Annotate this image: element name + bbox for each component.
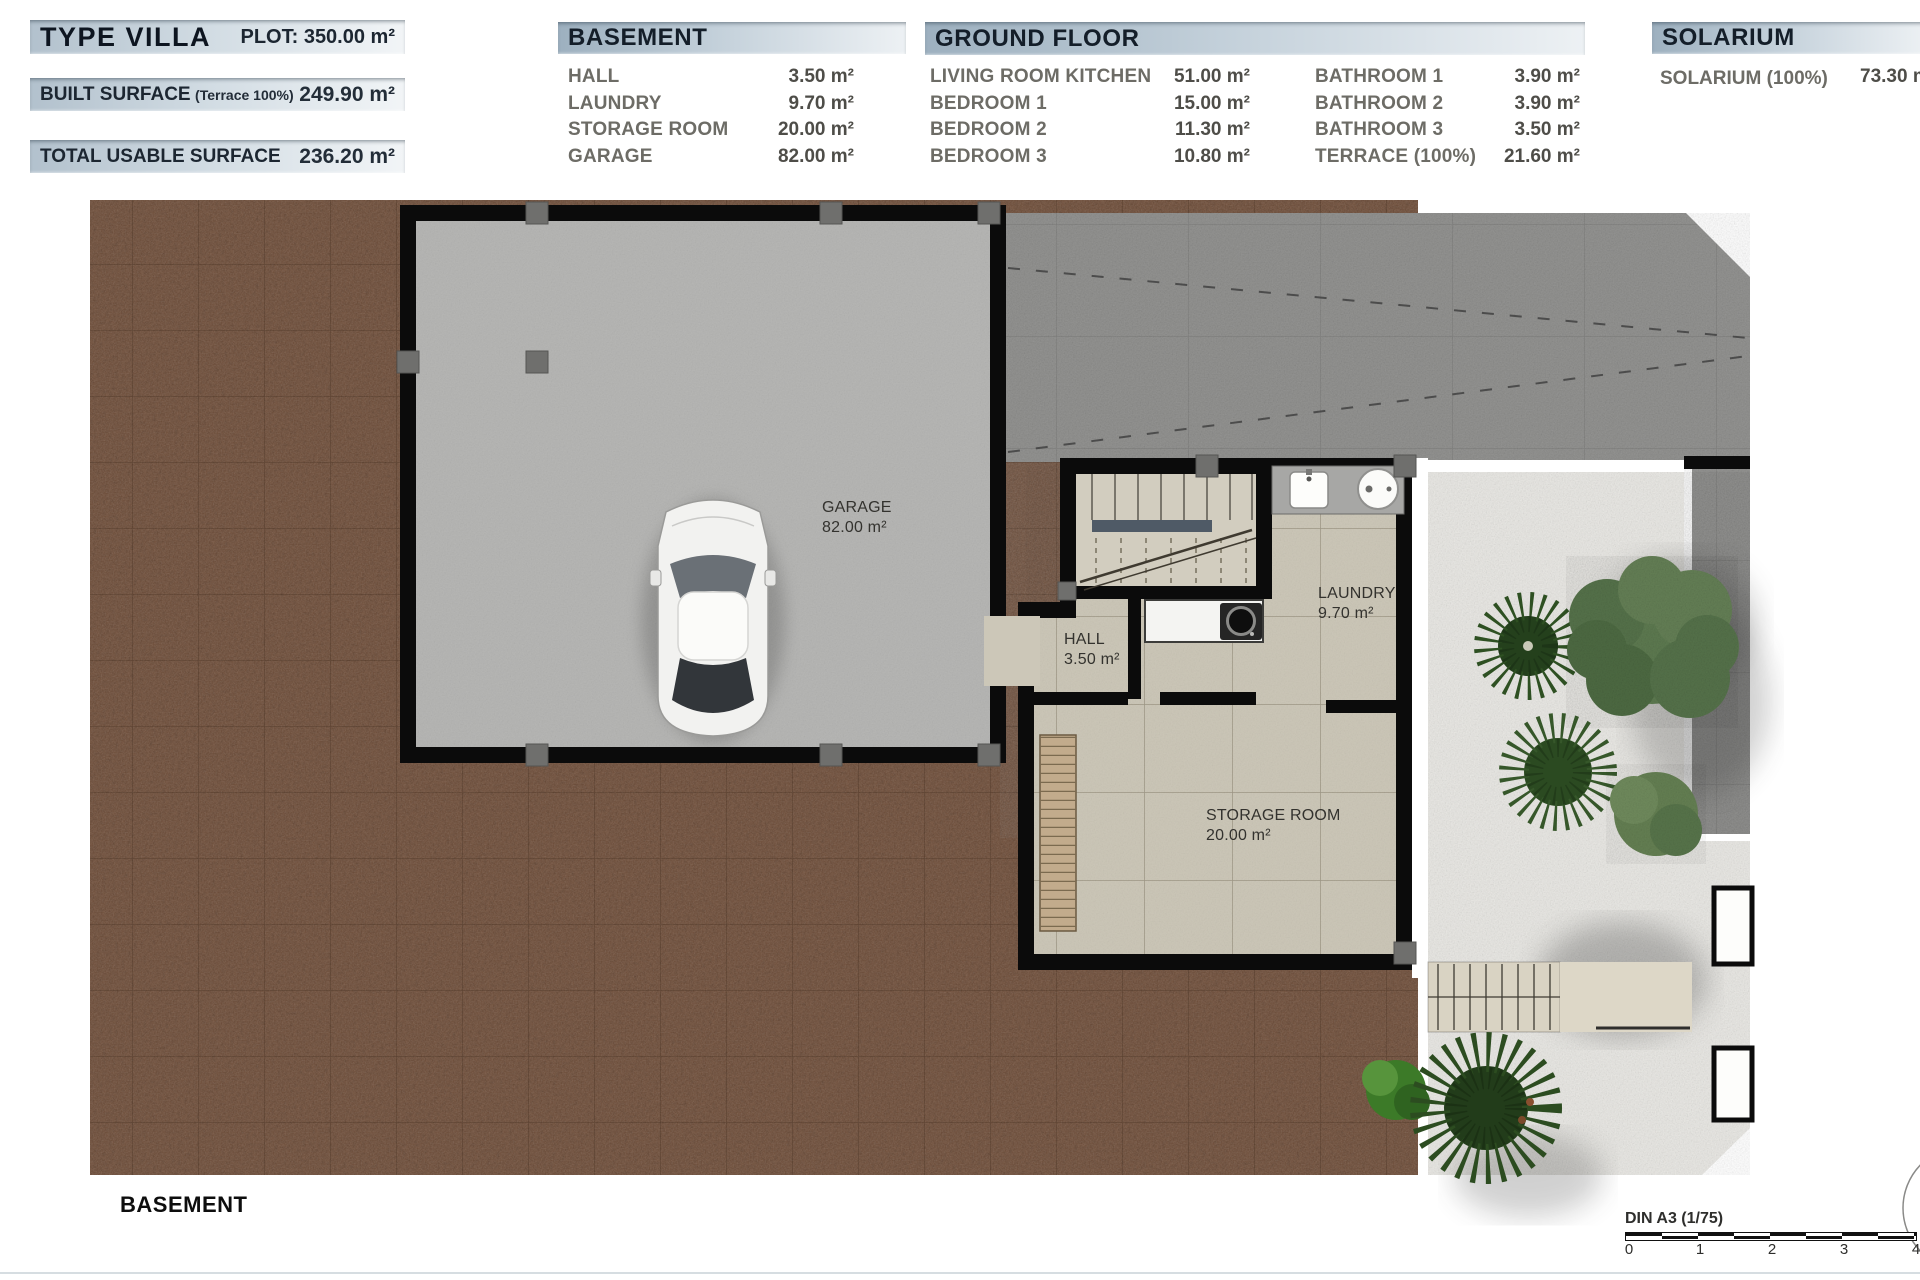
basement-table: HALL 3.50 m² LAUNDRY 9.70 m² STORAGE ROO… — [568, 64, 854, 170]
ground-floor-table-header: GROUND FLOOR — [925, 22, 1585, 55]
built-surface-bar: BUILT SURFACE (Terrace 100%) 249.90 m² — [30, 78, 405, 111]
room-name: HALL — [1064, 630, 1120, 650]
usable-surface-label: TOTAL USABLE SURFACE — [40, 146, 281, 168]
planter-box-2 — [1714, 1048, 1752, 1120]
room-name: STORAGE ROOM — [1206, 806, 1341, 826]
table-row: LAUNDRY 9.70 m² — [568, 91, 854, 118]
floor-plan-page: TYPE VILLA PLOT: 350.00 m² BUILT SURFACE… — [0, 0, 1920, 1280]
row-label: BATHROOM 3 — [1315, 119, 1443, 141]
row-value: 9.70 m² — [789, 93, 854, 115]
scale-bar-block: DIN A3 (1/75) 0 1 2 3 4 — [1625, 1210, 1920, 1266]
storage-label: STORAGE ROOM 20.00 m² — [1206, 806, 1341, 846]
row-label: GARAGE — [568, 146, 653, 168]
table-row: LIVING ROOM KITCHEN 51.00 m² — [930, 64, 1250, 91]
room-area: 20.00 m² — [1206, 826, 1341, 846]
solarium-table-header: SOLARIUM — [1652, 22, 1920, 54]
row-value: 82.00 m² — [778, 146, 854, 168]
row-label: BEDROOM 3 — [930, 146, 1047, 168]
row-value: 3.90 m² — [1515, 66, 1580, 88]
ground-floor-col2: BATHROOM 1 3.90 m² BATHROOM 2 3.90 m² BA… — [1315, 64, 1580, 170]
built-surface-sub: (Terrace 100%) — [195, 87, 294, 103]
car-roof — [678, 592, 748, 660]
row-label: BATHROOM 2 — [1315, 93, 1443, 115]
garage-label: GARAGE 82.00 m² — [822, 498, 892, 538]
table-row: BEDROOM 1 15.00 m² — [930, 91, 1250, 118]
floor-plan-drawing — [0, 0, 1920, 1280]
scale-tick: 4 — [1912, 1241, 1920, 1258]
table-row: STORAGE ROOM 20.00 m² — [568, 117, 854, 144]
row-value: 3.50 m² — [789, 66, 854, 88]
scale-tick: 0 — [1625, 1241, 1633, 1258]
car-top-view — [641, 499, 785, 743]
ground-floor-col1: LIVING ROOM KITCHEN 51.00 m² BEDROOM 1 1… — [930, 64, 1250, 170]
usable-surface-value: 236.20 m² — [299, 145, 395, 169]
row-label: LIVING ROOM KITCHEN — [930, 66, 1151, 88]
staircase — [1076, 474, 1256, 590]
floor-title: BASEMENT — [120, 1192, 247, 1218]
room-area: 82.00 m² — [822, 518, 892, 538]
row-value: 3.90 m² — [1515, 93, 1580, 115]
row-label: LAUNDRY — [568, 93, 662, 115]
usable-surface-bar: TOTAL USABLE SURFACE 236.20 m² — [30, 140, 405, 173]
large-tree — [1566, 556, 1739, 728]
basement-table-header: BASEMENT — [558, 22, 906, 54]
row-value: 51.00 m² — [1174, 66, 1250, 88]
door-opening — [984, 616, 1040, 686]
table-row: GARAGE 82.00 m² — [568, 144, 854, 171]
table-row: BEDROOM 2 11.30 m² — [930, 117, 1250, 144]
scale-tick: 3 — [1840, 1241, 1848, 1258]
laundry-label: LAUNDRY 9.70 m² — [1318, 584, 1396, 624]
planter-box-1 — [1714, 888, 1752, 964]
row-value: 21.60 m² — [1504, 146, 1580, 168]
built-surface-value: 249.90 m² — [299, 83, 395, 107]
scale-tick: 1 — [1696, 1241, 1704, 1258]
built-surface-label-group: BUILT SURFACE (Terrace 100%) — [40, 84, 294, 106]
built-surface-label: BUILT SURFACE — [40, 84, 191, 105]
solarium-row: SOLARIUM (100%) 73.30 m² — [1660, 66, 1920, 93]
table-row: BATHROOM 3 3.50 m² — [1315, 117, 1580, 144]
washing-machine-counter — [1145, 600, 1263, 642]
plot-value: PLOT: 350.00 m² — [240, 26, 395, 49]
type-villa-title: TYPE VILLA — [40, 22, 211, 53]
row-label: BEDROOM 1 — [930, 93, 1047, 115]
page-bottom-rule — [0, 1272, 1920, 1274]
row-value: 10.80 m² — [1174, 146, 1250, 168]
table-row: BATHROOM 2 3.90 m² — [1315, 91, 1580, 118]
exterior-stairs — [1428, 962, 1692, 1032]
storage-shelf — [1040, 735, 1076, 931]
row-value: 11.30 m² — [1175, 119, 1250, 141]
bush — [1606, 764, 1706, 864]
garden-path — [1560, 962, 1692, 1032]
row-label: BEDROOM 2 — [930, 119, 1047, 141]
row-label: BATHROOM 1 — [1315, 66, 1443, 88]
row-label: HALL — [568, 66, 619, 88]
table-row: BEDROOM 3 10.80 m² — [930, 144, 1250, 171]
basin-icon — [1358, 469, 1398, 509]
row-value: 3.50 m² — [1515, 119, 1580, 141]
room-name: GARAGE — [822, 498, 892, 518]
solarium-table-title: SOLARIUM — [1662, 24, 1795, 52]
table-row: BATHROOM 1 3.90 m² — [1315, 64, 1580, 91]
table-row: HALL 3.50 m² — [568, 64, 854, 91]
car-rear-window — [672, 658, 754, 713]
room-area: 3.50 m² — [1064, 650, 1120, 670]
table-row: TERRACE (100%) 21.60 m² — [1315, 144, 1580, 171]
scale-bar — [1625, 1232, 1917, 1241]
laundry-counter — [1272, 466, 1404, 514]
room-name: LAUNDRY — [1318, 584, 1396, 604]
row-value: 73.30 m² — [1860, 66, 1920, 88]
ground-floor-table-title: GROUND FLOOR — [935, 25, 1140, 53]
scale-bar-row — [1626, 1236, 1916, 1239]
row-label: STORAGE ROOM — [568, 119, 728, 141]
hall-label: HALL 3.50 m² — [1064, 630, 1120, 670]
car-mirror-left — [650, 570, 661, 586]
basement-table-title: BASEMENT — [568, 24, 707, 52]
car-mirror-right — [765, 570, 776, 586]
row-label: TERRACE (100%) — [1315, 146, 1476, 168]
row-value: 15.00 m² — [1174, 93, 1250, 115]
scale-label: DIN A3 (1/75) — [1625, 1210, 1920, 1228]
room-area: 9.70 m² — [1318, 604, 1396, 624]
scale-tick: 2 — [1768, 1241, 1776, 1258]
row-value: 20.00 m² — [778, 119, 854, 141]
garden-wall-segment — [1684, 456, 1750, 469]
type-villa-bar: TYPE VILLA PLOT: 350.00 m² — [30, 20, 405, 54]
scale-ticks: 0 1 2 3 4 — [1625, 1241, 1920, 1261]
